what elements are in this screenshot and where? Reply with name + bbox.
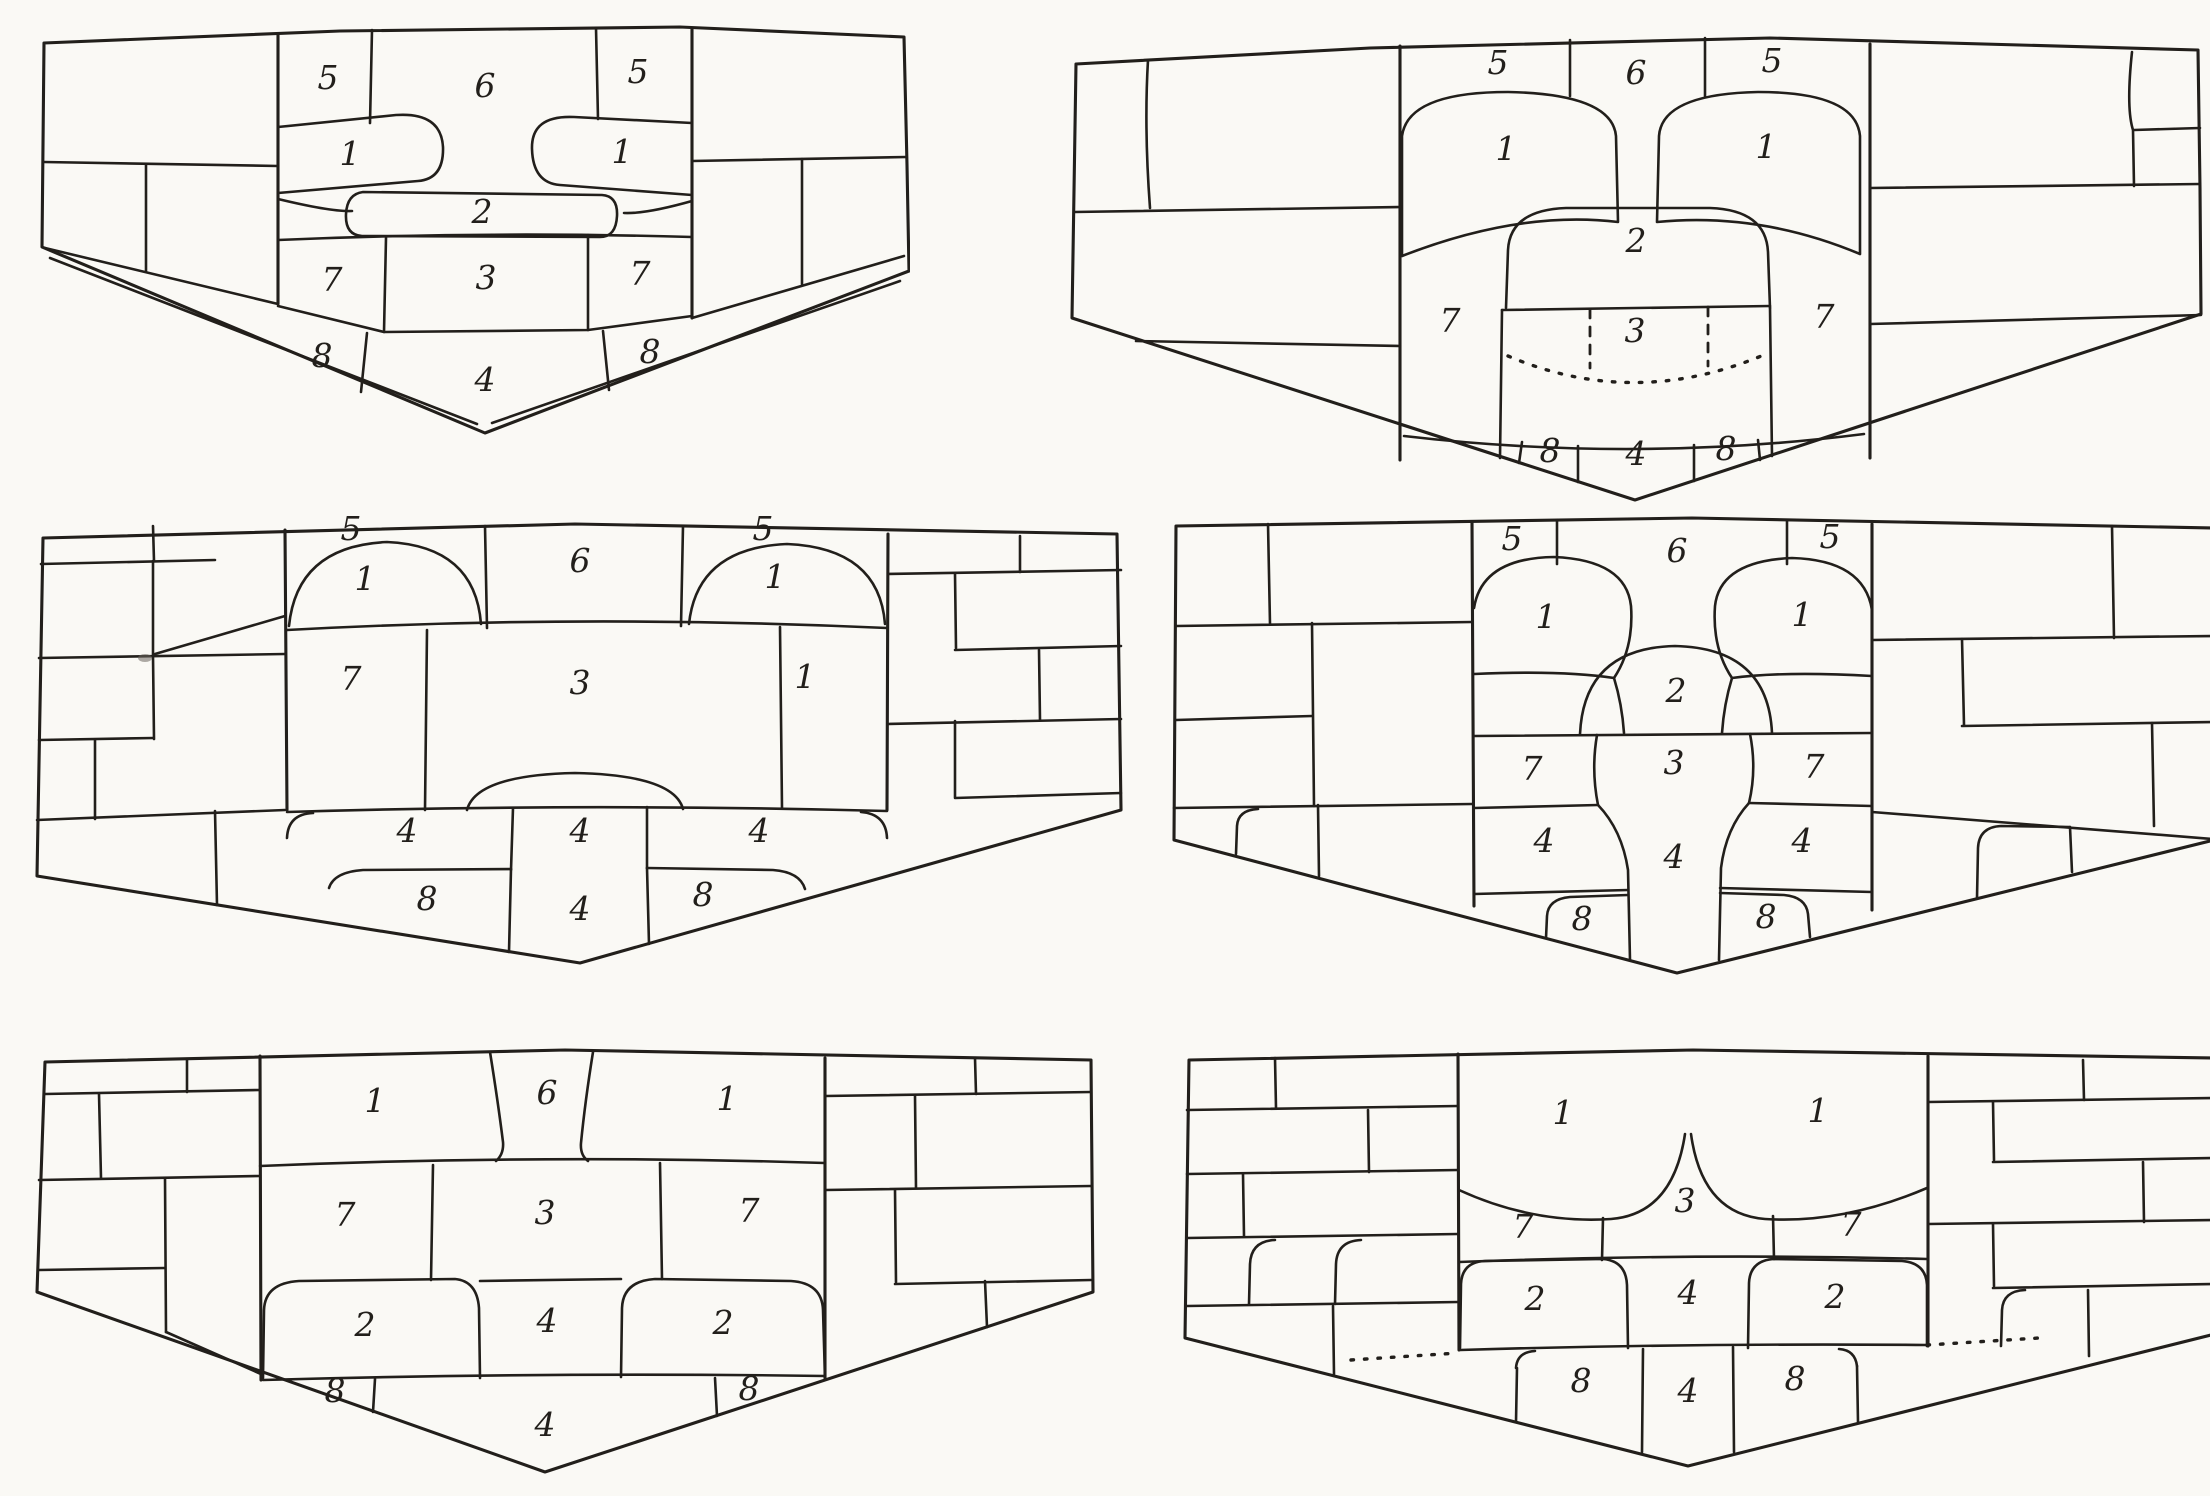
- scale-number: 3: [535, 1193, 556, 1232]
- scale-number: 7: [1841, 1205, 1862, 1244]
- linework: [1174, 518, 2210, 973]
- scale-number: 7: [1814, 297, 1835, 336]
- scale-number: 1: [340, 134, 361, 173]
- scale-numbers: 161737242848: [325, 1073, 760, 1444]
- scale-numbers: 11737242848: [1513, 1091, 1862, 1410]
- scale-number: 7: [341, 659, 362, 698]
- scale-number: 4: [748, 811, 770, 850]
- scale-number: 1: [1808, 1091, 1829, 1130]
- scale-number: 7: [322, 260, 343, 299]
- scale-number: 8: [1571, 1361, 1592, 1400]
- scale-number: 8: [1756, 897, 1777, 936]
- shield-drawing: 56511273744488: [1172, 508, 2210, 1000]
- scale-numbers: 565112737848: [1440, 41, 1835, 473]
- scale-number: 3: [476, 258, 497, 297]
- scale-number: 5: [1820, 517, 1841, 556]
- shield-diagram-top-right: 565112737848: [1070, 8, 2205, 506]
- scale-number: 4: [396, 811, 418, 850]
- scale-number: 6: [1626, 53, 1647, 92]
- scale-number: 8: [1785, 1359, 1806, 1398]
- shield-diagram-middle-right: 56511273744488: [1172, 508, 2210, 1000]
- scale-number: 7: [335, 1195, 356, 1234]
- scale-number: 7: [1804, 747, 1825, 786]
- scale-number: 8: [417, 879, 438, 918]
- scale-number: 4: [1677, 1273, 1699, 1312]
- scale-number: 8: [325, 1371, 346, 1410]
- scale-number: 7: [1440, 301, 1461, 340]
- shield-drawing: 161737242848: [35, 1042, 1100, 1494]
- shield-drawing: 56511731444848: [35, 508, 1125, 1000]
- plate-sheet: 565112737848: [0, 0, 2210, 1496]
- scale-number: 2: [712, 1303, 734, 1342]
- scale-number: 7: [1522, 749, 1543, 788]
- scale-number: 8: [312, 336, 333, 375]
- scale-numbers: 56511273744488: [1502, 517, 1841, 938]
- scale-number: 4: [1677, 1371, 1699, 1410]
- scale-number: 1: [1553, 1093, 1574, 1132]
- scale-number: 6: [1667, 531, 1688, 570]
- scale-number: 5: [1502, 519, 1523, 558]
- scale-number: 2: [1524, 1279, 1546, 1318]
- shield-drawing: 565112737848: [1070, 8, 2205, 506]
- scale-number: 4: [474, 360, 496, 399]
- scale-number: 5: [628, 52, 649, 91]
- scale-number: 5: [753, 509, 774, 548]
- linework: [37, 1050, 1093, 1472]
- scale-number: 3: [1664, 743, 1685, 782]
- scale-number: 6: [475, 66, 496, 105]
- scale-number: 2: [1625, 221, 1647, 260]
- scale-number: 7: [630, 254, 651, 293]
- scale-number: 8: [1540, 431, 1561, 470]
- scale-number: 5: [341, 509, 362, 548]
- scale-number: 8: [693, 875, 714, 914]
- shield-diagram-bottom-right: 11737242848: [1183, 1038, 2210, 1493]
- scale-number: 1: [355, 559, 376, 598]
- linework: [1072, 38, 2201, 500]
- scale-number: 1: [1536, 597, 1557, 636]
- scale-number: 1: [612, 132, 633, 171]
- scale-number: 4: [569, 889, 591, 928]
- scale-number: 3: [1625, 311, 1646, 350]
- scale-number: 2: [354, 1305, 376, 1344]
- scale-number: 1: [365, 1081, 386, 1120]
- scale-number: 3: [1675, 1181, 1696, 1220]
- scale-numbers: 56511731444848: [341, 509, 816, 928]
- shield-diagram-bottom-left: 161737242848: [35, 1042, 1100, 1494]
- scale-number: 4: [569, 811, 591, 850]
- scale-numbers: 565112737848: [312, 52, 661, 399]
- scale-number: 6: [570, 541, 591, 580]
- shield-drawing: 565112737848: [40, 15, 910, 440]
- scale-number: 2: [1824, 1277, 1846, 1316]
- shield-diagram-middle-left: 56511731444848: [35, 508, 1125, 1000]
- shield-drawing: 11737242848: [1183, 1038, 2210, 1493]
- scale-number: 8: [1572, 899, 1593, 938]
- scale-number: 8: [1716, 429, 1737, 468]
- scale-number: 6: [537, 1073, 558, 1112]
- scale-number: 4: [1663, 837, 1685, 876]
- scale-number: 1: [1792, 595, 1813, 634]
- scale-number: 5: [318, 58, 339, 97]
- scale-number: 7: [1513, 1207, 1534, 1246]
- scale-number: 1: [765, 557, 786, 596]
- scale-number: 3: [570, 663, 591, 702]
- scale-number: 8: [640, 332, 661, 371]
- scale-number: 2: [1665, 671, 1687, 710]
- shield-diagram-top-left: 565112737848: [40, 15, 910, 440]
- scale-number: 4: [1791, 821, 1813, 860]
- scale-number: 7: [739, 1191, 760, 1230]
- scale-number: 4: [1533, 821, 1555, 860]
- scale-number: 1: [1496, 129, 1517, 168]
- scale-number: 4: [1625, 434, 1647, 473]
- scale-number: 8: [739, 1369, 760, 1408]
- scale-number: 5: [1762, 41, 1783, 80]
- scale-number: 1: [1756, 127, 1777, 166]
- scale-number: 4: [536, 1301, 558, 1340]
- scale-number: 1: [795, 657, 816, 696]
- scale-number: 1: [717, 1079, 738, 1118]
- scale-number: 4: [534, 1405, 556, 1444]
- scale-number: 5: [1488, 43, 1509, 82]
- scale-number: 2: [471, 192, 493, 231]
